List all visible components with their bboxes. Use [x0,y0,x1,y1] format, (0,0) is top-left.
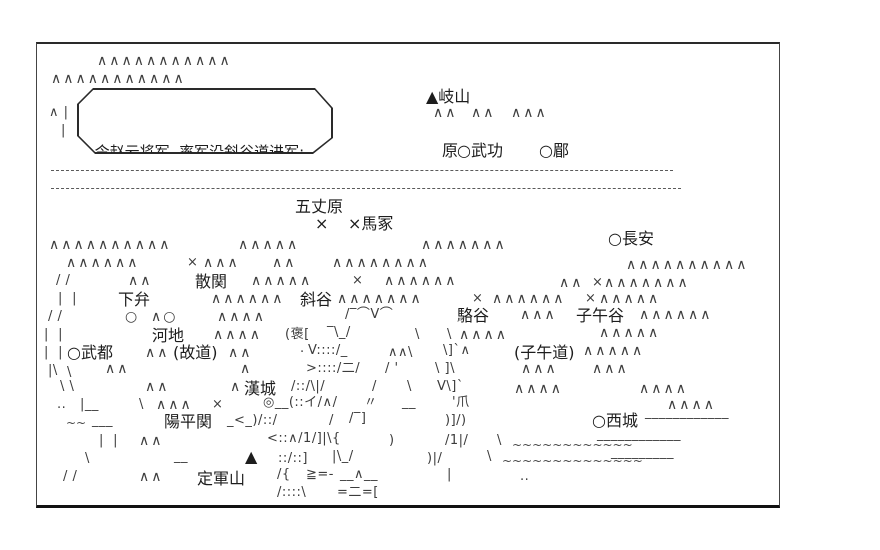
ascii-art-segment: ) [389,434,395,448]
mountain-range: ∧∧∧ [511,106,548,120]
speech-bubble-inner: 令赵云将军, 率军沿斜谷道进军; 为疑兵, 吸引魏军主力。 [79,90,332,153]
label-sanguan: 散関 [195,273,227,290]
ascii-art-segment: /1|/ [445,434,468,448]
label-gudao: (故道) [173,344,218,361]
ascii-art-segment: (褒[ [285,328,310,342]
mountain-range: ∧∧ [228,346,253,360]
ascii-art-segment: / ' [385,362,399,376]
ascii-art-segment: | | [58,292,77,306]
ascii-art-segment: .. [520,470,529,484]
mountain-range: ∧∧ [471,106,496,120]
ascii-art-segment: / [329,414,334,428]
ascii-art-segment: × [187,256,198,270]
ascii-art-segment: )]/) [445,414,467,428]
label-wuzhangyuan: 五丈原 [295,198,343,215]
ascii-art-segment: \ [67,366,72,380]
mountain-range: ∧∧∧ [520,308,557,322]
ascii-art-segment: __ [174,450,188,464]
ascii-art-segment: \ [497,434,502,448]
mountain-range: ∧∧∧∧∧ [583,344,644,358]
river-dashed-line [51,188,681,189]
mountain-range: ∧∧ [559,276,584,290]
ascii-art-segment: |\_/ [332,450,354,464]
mountain-range: ○ [125,310,139,324]
mountain-range: ∧∧∧∧∧∧ [384,274,457,288]
mountain-range: ∧∧ [128,274,153,288]
ascii-art-segment: / / [63,470,77,484]
label-dingjunshan: 定軍山 [197,470,245,487]
ascii-art-segment: \ ]\ [435,362,455,376]
mountain-range: ∧∧∧∧ [514,382,563,396]
ascii-art-segment: | [61,124,66,138]
label-wudu: ○武都 [67,344,113,361]
label-dingjunshan-mark: ▲ [245,448,257,465]
mountain-range: ∧∧∧ [521,362,558,376]
ascii-art-segment: / [372,380,377,394]
mountain-range: ∧∧∧∧∧ [599,326,660,340]
label-yuan: 原 [442,142,458,159]
mountain-range: ∧ [240,362,252,376]
mountain-range: ∧∧∧∧∧ [251,274,312,288]
ascii-art-segment: ≧=- [306,468,334,482]
ascii-art-segment: / / [56,274,70,288]
ascii-art-segment: ____________ [597,428,681,442]
ascii-art-segment: ◎__(::イ/∧/ [263,396,337,410]
ascii-art-segment: ___ [92,414,113,428]
label-hedi: 河地 [152,327,184,344]
label-mazhong: ×馬冢 [348,215,393,232]
ascii-art-segment: =二=[ [337,486,379,500]
mountain-range: ∧∧ [105,362,130,376]
ascii-art-segment: __∧__ [340,468,378,482]
ascii-art-segment: >::::/二/ [306,362,360,376]
map-frame: 令赵云将军, 率军沿斜谷道进军; 为疑兵, 吸引魏军主力。 ▲岐山原○武功○郿五… [36,42,780,508]
mountain-range: ∧∧∧∧∧∧ [639,308,712,322]
ascii-art-segment: \ [407,380,412,394]
mountain-range: ∧∧∧ [203,256,240,270]
label-mei: ○郿 [539,142,569,159]
ascii-art-segment: _<_)/::/ [227,414,277,428]
mountain-range: ∧∧∧∧ [213,328,262,342]
label-ziwudao: (子午道) [514,344,575,361]
mountain-range: ∧∧∧∧∧∧∧ [604,276,690,290]
mountain-range: ∧∧∧∧∧∧∧∧∧∧∧ [97,54,232,68]
ascii-art-segment: × [352,274,363,288]
ascii-art-segment: · [300,346,305,360]
mountain-range: ∧∧ [272,256,297,270]
label-luogu: 駱谷 [457,307,489,324]
ascii-art-segment: ∧∧\ [388,346,413,360]
ascii-art-segment: /‾⌒V⌒ [345,308,393,322]
ascii-art-segment: ~~ [66,416,86,430]
ascii-art-segment: \ \ [60,380,74,394]
label-changan: ○長安 [608,230,654,247]
mountain-range: ∧∧ [139,470,164,484]
mountain-range: ∧∧∧∧∧∧ [66,256,139,270]
mountain-range: ∧∧∧∧ [217,310,266,324]
ascii-art-segment: <::∧/1/]|\{ [267,432,341,446]
ascii-art-segment: /‾] [349,412,366,426]
ascii-art-segment: |__ [80,398,99,412]
mountain-range: ∧∧∧∧∧∧∧∧∧∧∧ [51,72,186,86]
mountain-range: ∧∧∧∧∧∧∧∧∧∧ [49,238,171,252]
label-xiabian: 下弁 [118,291,150,308]
bubble-line-2: 为疑兵, 吸引魏军主力。 [95,205,305,226]
mountain-range: ∧∧∧∧∧ [238,238,299,252]
ascii-art-segment: \ [487,450,492,464]
ascii-art-segment: _________ [611,446,674,460]
ascii-art-segment: ‾\_/ [327,326,351,340]
ascii-art-segment: ∧ | [49,106,69,120]
ascii-art-segment: /::/\|/ [291,380,325,394]
mountain-range: ∧∧∧∧∧∧ [211,292,284,306]
ascii-art-segment: | | [44,328,63,342]
ascii-art-segment: |\ [48,364,58,378]
ascii-art-segment: \ [85,452,90,466]
mountain-range: ∧∧∧ [156,398,193,412]
ascii-art-segment: /{ [277,468,291,482]
ascii-art-segment: )|/ [427,452,442,466]
mountain-range: ∧∧∧∧∧∧ [492,292,565,306]
river-dashed-line [51,170,673,171]
ascii-art-segment: × [585,292,596,306]
mountain-range: ∧∧ [433,106,458,120]
ascii-art-segment: \ [415,328,420,342]
label-wugong: ○武功 [457,142,503,159]
ascii-art-segment: .. [57,398,66,412]
label-mark-west: × [315,215,328,232]
mountain-range: ∧∧ [139,434,164,448]
ascii-art-segment: × [472,292,483,306]
ascii-art-segment: \ [447,328,452,342]
mountain-range: ∧ [230,380,242,394]
mountain-range: ∧∧∧∧ [459,328,508,342]
ascii-art-segment: \ [139,398,144,412]
ascii-art-segment: | [447,468,452,482]
mountain-range: ∧∧∧∧∧ [599,292,660,306]
ascii-art-segment: '爪 [452,396,470,410]
label-qishan: ▲岐山 [426,88,470,105]
ascii-art-segment: | | [99,434,118,448]
mountain-range: ∧∧∧∧ [639,382,688,396]
label-yangpingguan: 陽平関 [164,413,212,430]
ascii-art-segment: __ [402,396,416,410]
ascii-art-segment: | | [44,346,63,360]
ascii-art-segment: / / [48,310,62,324]
bubble-line-1: 令赵云将军, 率军沿斜谷道进军; [95,142,305,163]
ascii-art-segment: /::::\ [277,486,306,500]
ascii-art-segment: × [212,398,223,412]
ascii-art-segment: ::/::] [278,452,308,466]
ascii-art-segment: × [592,276,603,290]
mountain-range: ∧∧ [145,346,170,360]
ascii-art-segment: ____________ [645,406,729,420]
label-ziwugu: 子午谷 [576,307,624,324]
mountain-range: ∧∧∧∧∧∧∧ [421,238,507,252]
mountain-range: ∧∧∧∧∧∧∧∧ [332,256,430,270]
mountain-range: ∧∧ [145,380,170,394]
mountain-range: ∧∧∧ [592,362,629,376]
mountain-range: ∧∧∧∧∧∧∧∧∧∧ [626,258,748,272]
ascii-art-segment: \]`∧ [443,344,470,358]
ascii-art-segment: 〃 [364,396,378,410]
mountain-range: ∧∧∧∧∧∧∧ [337,292,423,306]
mountain-range: ∧○ [151,310,177,324]
speech-bubble: 令赵云将军, 率军沿斜谷道进军; 为疑兵, 吸引魏军主力。 [77,88,333,154]
ascii-art-segment: V::::/_ [308,344,348,358]
label-xiegu: 斜谷 [300,291,332,308]
ascii-art-segment: V\]` [437,380,464,394]
